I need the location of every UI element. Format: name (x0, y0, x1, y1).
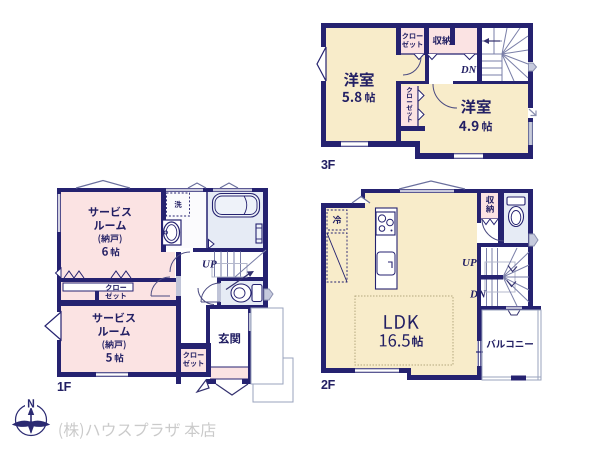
svg-text:DN: DN (469, 289, 487, 301)
svg-text:DN: DN (460, 65, 477, 76)
svg-text:UP: UP (202, 259, 217, 271)
svg-text:1F: 1F (57, 380, 72, 394)
svg-text:2F: 2F (321, 378, 336, 392)
svg-text:3F: 3F (321, 158, 336, 172)
svg-text:UP: UP (462, 257, 477, 269)
